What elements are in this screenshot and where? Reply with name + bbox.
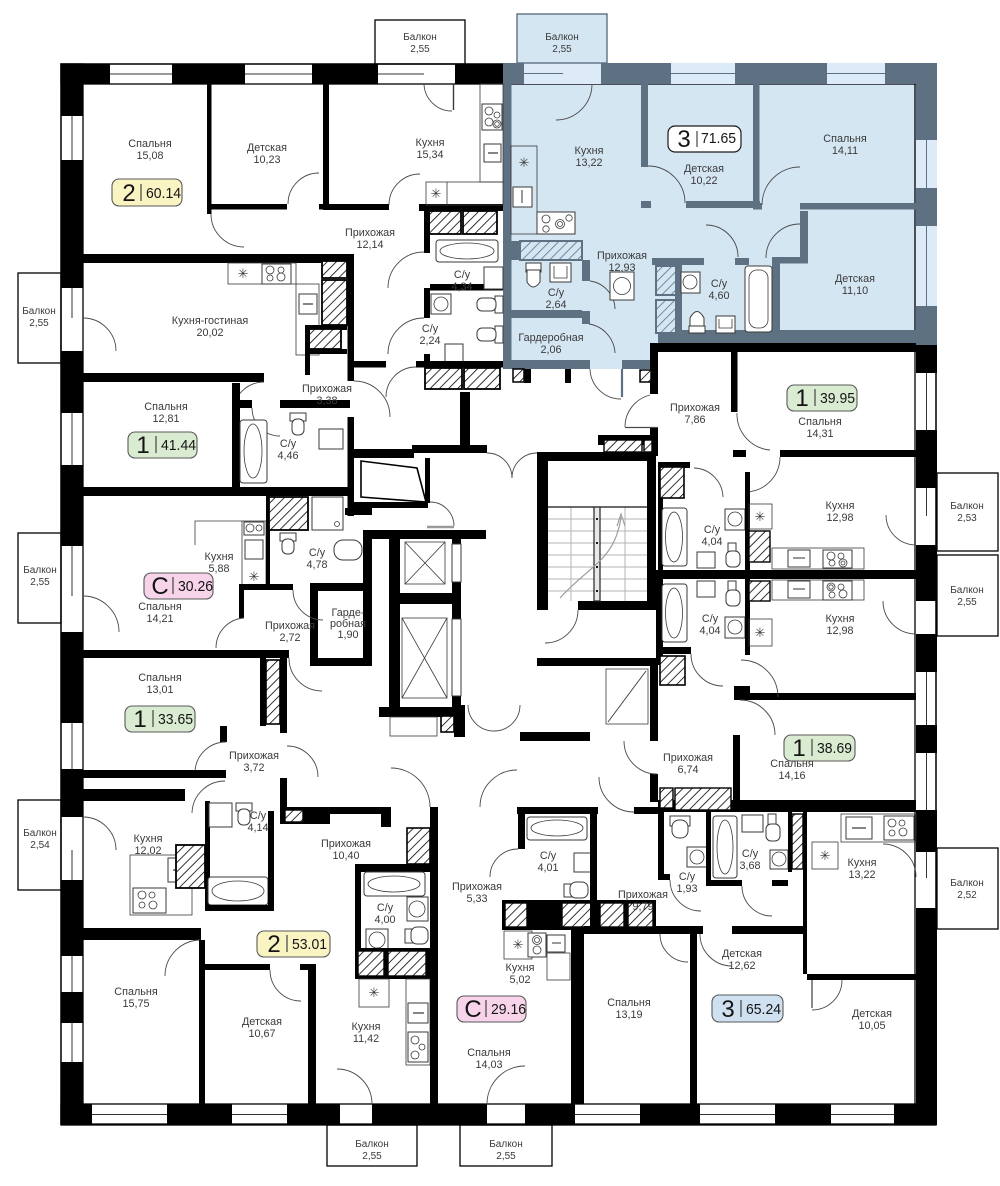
svg-text:С/у: С/у: [540, 850, 557, 862]
svg-text:С/у: С/у: [309, 547, 326, 559]
svg-text:5,88: 5,88: [208, 563, 229, 575]
svg-text:4,34: 4,34: [451, 281, 472, 293]
svg-text:С/у: С/у: [679, 871, 696, 883]
svg-text:Прихожая: Прихожая: [345, 227, 395, 239]
svg-text:15,34: 15,34: [416, 149, 443, 161]
svg-text:✳: ✳: [755, 625, 766, 640]
svg-text:60.14: 60.14: [146, 185, 181, 202]
svg-text:2,24: 2,24: [419, 335, 440, 347]
svg-text:Спальня: Спальня: [128, 138, 172, 150]
svg-text:2,54: 2,54: [30, 840, 50, 851]
svg-text:Балкон: Балкон: [23, 565, 57, 576]
svg-text:12,14: 12,14: [356, 239, 383, 251]
svg-text:✳: ✳: [238, 266, 249, 281]
svg-text:4,00: 4,00: [374, 914, 395, 926]
svg-text:2,55: 2,55: [957, 597, 977, 608]
svg-text:14,21: 14,21: [146, 613, 173, 625]
svg-text:14,16: 14,16: [778, 770, 805, 782]
svg-text:С: С: [464, 996, 481, 1023]
svg-text:Балкон: Балкон: [950, 585, 984, 596]
svg-text:2,55: 2,55: [29, 318, 49, 329]
svg-text:Спальня: Спальня: [144, 401, 188, 413]
svg-text:2,55: 2,55: [30, 577, 50, 588]
svg-text:✳: ✳: [513, 937, 524, 952]
svg-text:10,67: 10,67: [248, 1028, 275, 1040]
svg-text:Детская: Детская: [722, 948, 762, 960]
svg-text:41.44: 41.44: [161, 437, 196, 454]
svg-text:12,98: 12,98: [826, 512, 853, 524]
svg-text:1: 1: [792, 735, 805, 762]
svg-text:10,05: 10,05: [858, 1020, 885, 1032]
svg-text:13,22: 13,22: [848, 869, 875, 881]
svg-text:33.65: 33.65: [158, 711, 193, 728]
svg-text:5,02: 5,02: [509, 974, 530, 986]
svg-text:14,11: 14,11: [832, 145, 858, 157]
svg-text:3,38: 3,38: [316, 395, 337, 407]
svg-text:С/у: С/у: [377, 902, 394, 914]
svg-text:53.01: 53.01: [292, 936, 327, 953]
svg-text:4,04: 4,04: [699, 625, 720, 637]
svg-text:Детская: Детская: [835, 273, 875, 285]
svg-text:12,98: 12,98: [826, 625, 853, 637]
svg-text:Кухня: Кухня: [205, 551, 234, 563]
svg-text:Прихожая: Прихожая: [321, 838, 371, 850]
svg-text:4,78: 4,78: [306, 559, 327, 571]
svg-text:1: 1: [136, 432, 149, 459]
svg-text:2,55: 2,55: [496, 1151, 516, 1162]
svg-text:Балкон: Балкон: [545, 32, 579, 43]
svg-text:Балкон: Балкон: [355, 1139, 389, 1150]
svg-text:4,14: 4,14: [247, 822, 268, 834]
svg-text:Кухня: Кухня: [352, 1021, 381, 1033]
svg-text:30.26: 30.26: [178, 578, 213, 595]
svg-text:12,93: 12,93: [608, 262, 635, 274]
svg-text:Прихожая: Прихожая: [265, 620, 315, 632]
svg-text:2,53: 2,53: [957, 513, 977, 524]
svg-text:5,33: 5,33: [466, 893, 487, 905]
svg-text:С/у: С/у: [742, 848, 759, 860]
svg-text:С/у: С/у: [280, 438, 297, 450]
svg-text:Балкон: Балкон: [22, 306, 56, 317]
svg-text:38.69: 38.69: [817, 740, 852, 757]
svg-text:12,81: 12,81: [152, 413, 179, 425]
svg-text:С/у: С/у: [711, 278, 728, 290]
svg-text:12,02: 12,02: [134, 845, 161, 857]
svg-text:Балкон: Балкон: [950, 878, 984, 889]
svg-text:3,72: 3,72: [243, 762, 264, 774]
svg-text:11,10: 11,10: [842, 285, 868, 297]
svg-text:Прихожая: Прихожая: [597, 250, 647, 262]
svg-text:2: 2: [267, 931, 280, 958]
svg-text:2,72: 2,72: [279, 632, 300, 644]
svg-text:Прихожая: Прихожая: [302, 383, 352, 395]
svg-text:Спальня: Спальня: [467, 1047, 511, 1059]
svg-text:13,01: 13,01: [146, 684, 173, 696]
svg-text:65.24: 65.24: [746, 1001, 781, 1018]
svg-text:Балкон: Балкон: [950, 501, 984, 512]
svg-text:Спальня: Спальня: [114, 986, 158, 998]
svg-text:2,64: 2,64: [545, 299, 566, 311]
svg-text:Балкон: Балкон: [23, 828, 57, 839]
svg-text:Прихожая: Прихожая: [452, 881, 502, 893]
svg-text:С/у: С/у: [702, 613, 719, 625]
svg-text:4,60: 4,60: [708, 290, 729, 302]
svg-text:С: С: [151, 573, 168, 600]
svg-text:Гардеробная: Гардеробная: [518, 332, 583, 344]
svg-text:С/у: С/у: [422, 323, 439, 335]
svg-text:9,79: 9,79: [632, 901, 653, 913]
svg-text:✳: ✳: [820, 848, 831, 863]
svg-text:✳: ✳: [369, 985, 380, 1000]
svg-text:10,23: 10,23: [253, 154, 280, 166]
svg-text:10,22: 10,22: [690, 175, 717, 187]
svg-text:3,68: 3,68: [739, 860, 760, 872]
svg-text:10,40: 10,40: [332, 850, 359, 862]
svg-text:15,75: 15,75: [122, 998, 149, 1010]
svg-text:14,31: 14,31: [806, 428, 833, 440]
svg-text:Кухня: Кухня: [848, 857, 877, 869]
svg-text:Прихожая: Прихожая: [670, 402, 720, 414]
svg-text:1: 1: [133, 706, 146, 733]
svg-text:20,02: 20,02: [196, 327, 223, 339]
svg-text:2,52: 2,52: [957, 890, 977, 901]
svg-text:Детская: Детская: [852, 1008, 892, 1020]
svg-text:2,55: 2,55: [362, 1151, 382, 1162]
svg-text:13,19: 13,19: [615, 1009, 642, 1021]
svg-text:Детская: Детская: [242, 1016, 282, 1028]
svg-text:6,74: 6,74: [677, 764, 698, 776]
svg-text:Кухня: Кухня: [506, 962, 535, 974]
svg-text:С/у: С/у: [454, 269, 471, 281]
svg-text:Спальня: Спальня: [798, 416, 842, 428]
svg-text:Прихожая: Прихожая: [618, 889, 668, 901]
svg-text:4,46: 4,46: [277, 450, 298, 462]
svg-text:С/у: С/у: [250, 810, 267, 822]
svg-text:Спальня: Спальня: [607, 997, 651, 1009]
svg-text:✳: ✳: [755, 509, 766, 524]
svg-text:Балкон: Балкон: [489, 1139, 523, 1150]
svg-text:Прихожая: Прихожая: [229, 750, 279, 762]
svg-text:Детская: Детская: [684, 163, 724, 175]
svg-text:2,06: 2,06: [540, 344, 561, 356]
svg-text:Кухня: Кухня: [416, 137, 445, 149]
svg-text:4,01: 4,01: [537, 862, 558, 874]
svg-text:Спальня: Спальня: [823, 133, 867, 145]
svg-text:Прихожая: Прихожая: [663, 752, 713, 764]
svg-text:2,55: 2,55: [410, 44, 430, 55]
svg-text:Спальня: Спальня: [138, 601, 182, 613]
svg-text:1,93: 1,93: [676, 883, 697, 895]
svg-text:1: 1: [795, 385, 808, 412]
svg-text:4,04: 4,04: [701, 536, 722, 548]
svg-text:Спальня: Спальня: [138, 672, 182, 684]
svg-text:✳: ✳: [519, 155, 530, 170]
svg-text:Кухня: Кухня: [826, 500, 855, 512]
svg-text:Кухня: Кухня: [575, 145, 604, 157]
svg-text:3: 3: [721, 996, 734, 1023]
svg-text:Кухня: Кухня: [826, 613, 855, 625]
svg-text:12,62: 12,62: [728, 960, 755, 972]
svg-text:7,86: 7,86: [684, 414, 705, 426]
svg-text:✳: ✳: [249, 569, 260, 584]
svg-text:71.65: 71.65: [701, 130, 736, 147]
svg-text:15,08: 15,08: [136, 150, 163, 162]
svg-text:✳: ✳: [431, 186, 442, 201]
svg-text:11,42: 11,42: [353, 1033, 379, 1045]
svg-text:Кухня-гостиная: Кухня-гостиная: [172, 315, 249, 327]
svg-text:С/у: С/у: [548, 287, 565, 299]
svg-text:Детская: Детская: [247, 142, 287, 154]
svg-text:39.95: 39.95: [820, 390, 855, 407]
svg-text:14,03: 14,03: [475, 1059, 502, 1071]
svg-text:29.16: 29.16: [491, 1001, 526, 1018]
svg-text:3: 3: [677, 126, 690, 153]
svg-text:1,90: 1,90: [337, 629, 358, 641]
svg-text:2: 2: [122, 180, 135, 207]
svg-text:Кухня: Кухня: [134, 833, 163, 845]
svg-text:2,55: 2,55: [552, 44, 572, 55]
svg-text:С/у: С/у: [704, 524, 721, 536]
svg-text:Балкон: Балкон: [403, 32, 437, 43]
svg-text:13,22: 13,22: [575, 157, 602, 169]
